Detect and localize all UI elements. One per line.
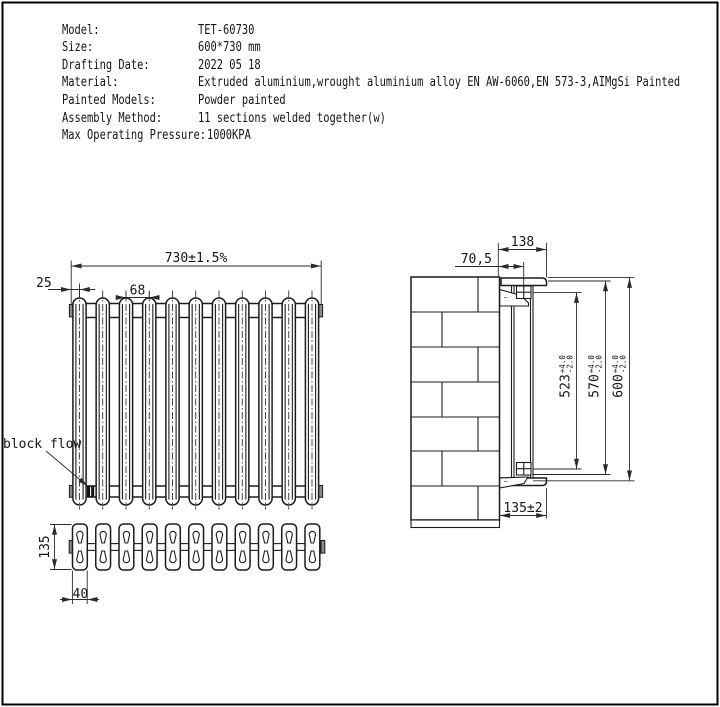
- dim-end-offset: 25: [36, 276, 95, 297]
- wall-base-strip: [411, 520, 500, 528]
- radiator-sections: [73, 524, 320, 570]
- dim-text-overall-width: 730±1.5%: [165, 251, 228, 266]
- dim-text-inner-height: 523+4.0-2.0: [558, 355, 575, 398]
- dim-text-section-pitch: 68: [130, 284, 146, 299]
- dim-inner-height: 523+4.0-2.0: [533, 293, 582, 469]
- dim-text-bracket-height: 570+4.0-2.0: [587, 355, 604, 398]
- dim-text-overall-height: 600+4.0-2.0: [611, 355, 628, 398]
- drawing-sheet: Model: TET-60730 Size: 600*730 mm Drafti…: [0, 0, 720, 707]
- block-flow-label: block flow: [3, 437, 81, 452]
- wall-bracket-bottom: [500, 477, 528, 488]
- end-cap: [321, 541, 325, 554]
- dim-total-depth: 138: [498, 235, 546, 278]
- dim-text-section-width: 40: [73, 587, 89, 602]
- dim-overall-width: 730±1.5%: [71, 251, 321, 304]
- dim-section-depth: 135: [38, 525, 72, 570]
- wall-section: [411, 277, 500, 528]
- dim-floor-depth: 135±2: [500, 488, 547, 519]
- radiator-columns: [73, 291, 319, 510]
- top-view: 135 40: [38, 524, 325, 604]
- dim-text-total-depth: 138: [511, 235, 534, 250]
- side-view: 138 70,5 523+4.0-2.0: [411, 235, 635, 528]
- mounting-bolt-bottom: [517, 463, 532, 476]
- dim-text-section-depth: 135: [38, 535, 53, 558]
- mounting-bolt-top: [517, 286, 532, 299]
- technical-drawing: 730±1.5% 25 68 block flow: [0, 0, 720, 707]
- dim-text-floor-depth: 135±2: [503, 501, 542, 516]
- block-flow-plug: [87, 486, 93, 497]
- dim-text-end-offset: 25: [36, 276, 52, 291]
- dim-section-width: 40: [60, 571, 99, 605]
- dim-section-pitch: 68: [117, 284, 158, 301]
- radiator-side-profile: [500, 278, 547, 488]
- front-view: 730±1.5% 25 68 block flow: [3, 251, 323, 510]
- dim-overall-height: 600+4.0-2.0: [533, 278, 635, 481]
- dim-text-wall-to-center: 70,5: [461, 252, 492, 267]
